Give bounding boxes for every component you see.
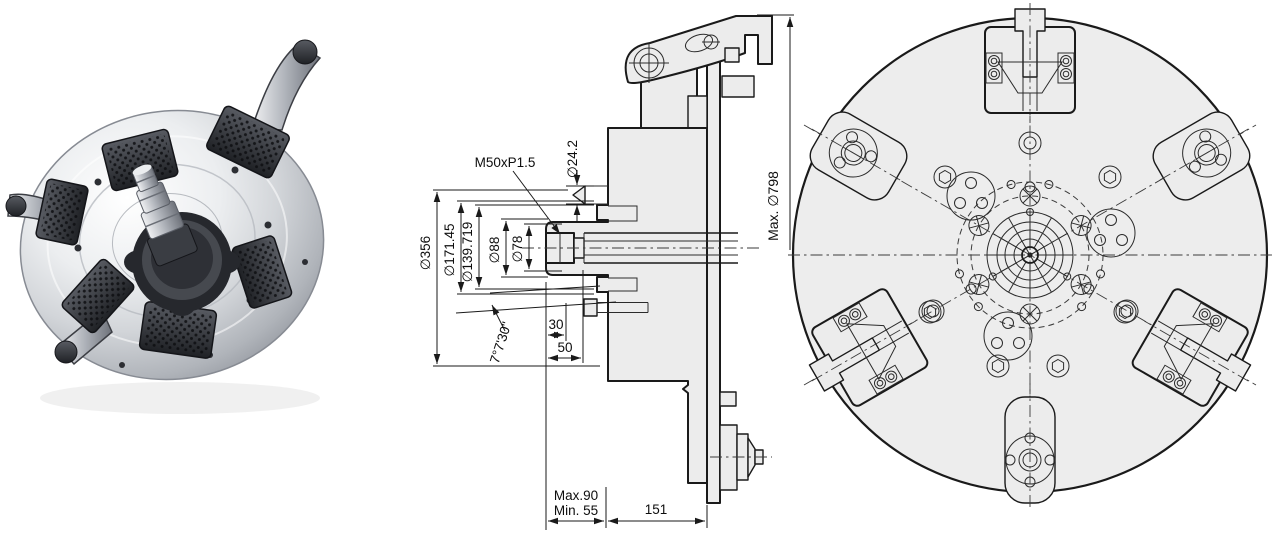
label-30: 30 <box>548 317 563 332</box>
label-stroke-max: Max.90 <box>554 488 598 503</box>
label-dia-88: ∅88 <box>487 237 502 264</box>
front-view <box>788 3 1272 507</box>
dim-stroke: Max.90 Min. 55 <box>548 487 606 528</box>
dim-dia-24-2: ∅24.2 <box>565 140 594 221</box>
catalog-figure: ∅356 ∅171.45 ∅139.719 ∅88 ∅78 <box>0 0 1284 540</box>
section-view: ∅356 ∅171.45 ∅139.719 ∅88 ∅78 <box>418 15 794 530</box>
product-photo <box>1 40 343 414</box>
label-dia-171-45: ∅171.45 <box>442 223 457 276</box>
photo-shadow <box>40 382 320 414</box>
bottom-mounting-pad <box>1005 383 1055 507</box>
label-stroke-min: Min. 55 <box>554 503 598 518</box>
label-max-swing: Max. ∅798 <box>765 171 781 241</box>
label-thread: M50xP1.5 <box>475 155 536 170</box>
label-50: 50 <box>557 340 572 355</box>
back-plate <box>707 58 720 503</box>
dim-thread: M50xP1.5 <box>475 155 560 234</box>
label-dia-139-719: ∅139.719 <box>460 222 475 283</box>
label-taper-angle: 7°7'30" <box>487 320 515 366</box>
drawing-sheet: ∅356 ∅171.45 ∅139.719 ∅88 ∅78 <box>0 0 1284 540</box>
label-dia-24-2: ∅24.2 <box>565 140 580 178</box>
label-151: 151 <box>645 502 668 517</box>
dim-151: 151 <box>608 502 707 528</box>
dim-taper-angle: 7°7'30" <box>456 286 616 365</box>
label-dia-78: ∅78 <box>510 236 525 263</box>
label-dia-356: ∅356 <box>418 236 433 270</box>
clamp-arm-top-right <box>252 40 320 130</box>
